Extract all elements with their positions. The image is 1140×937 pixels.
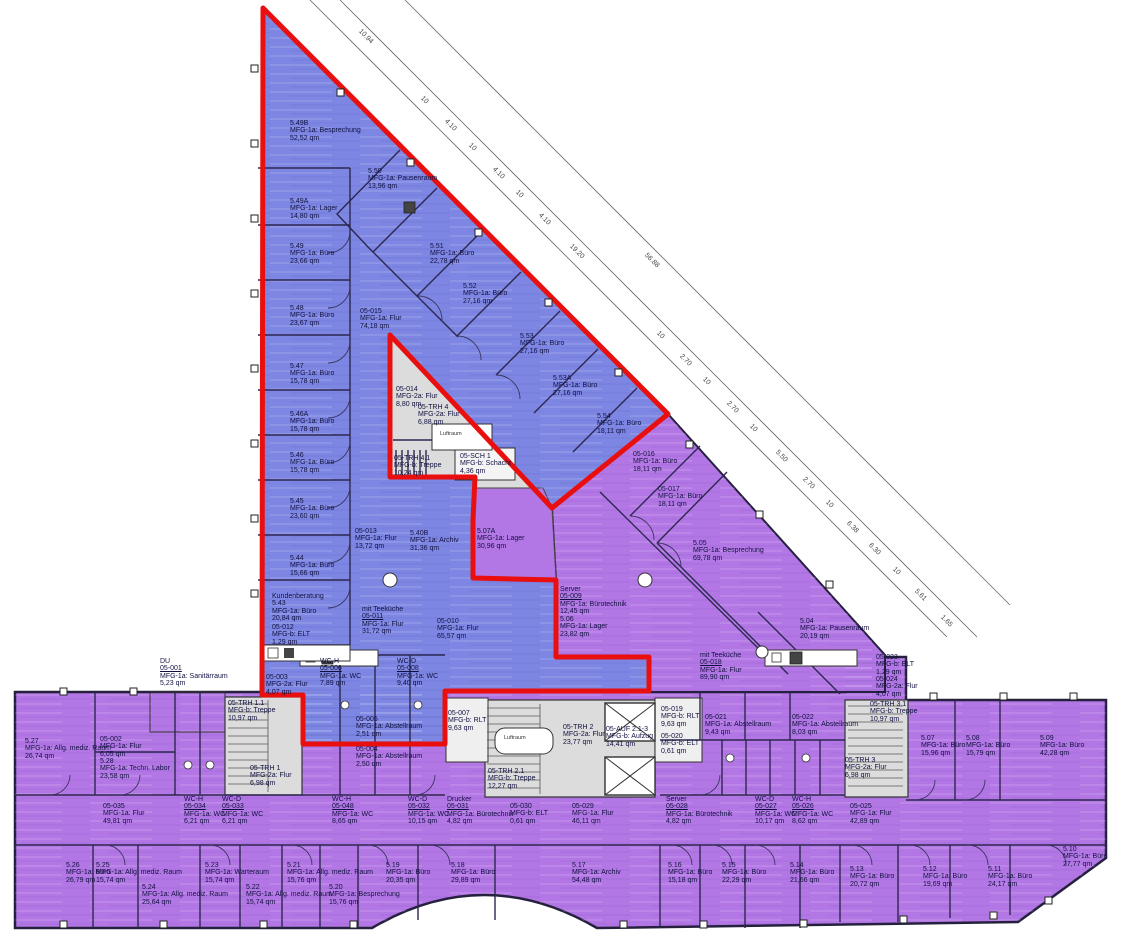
room-05-019 <box>655 698 702 762</box>
floorplan-drawing <box>0 0 1140 937</box>
room-05-007 <box>446 698 488 762</box>
stair-core-trh3 <box>845 700 908 797</box>
floor-plan: 5.49BMFG-1a: Besprechung52,52 qm5.50MFG-… <box>0 0 1140 937</box>
